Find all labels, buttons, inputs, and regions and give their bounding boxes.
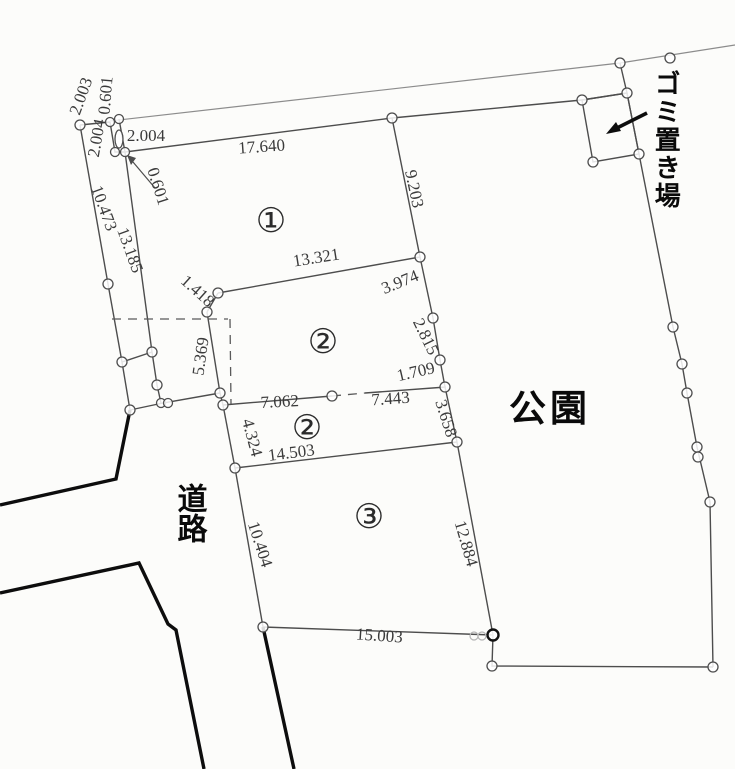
dimension-label: 13.185 (113, 225, 147, 275)
road-label: 道路 (173, 483, 205, 543)
outer-boundary-line (110, 45, 735, 121)
dimension-label: 13.321 (292, 245, 341, 271)
dashed-boundary (112, 319, 231, 404)
dimension-label: 2.004 (127, 126, 166, 145)
road-outline (0, 410, 294, 769)
parcel-number: ② (292, 408, 322, 448)
garbage-area-outline (582, 93, 639, 162)
corner-jog-detail (115, 130, 123, 148)
dimension-label: 4.324 (238, 417, 266, 459)
parcel-number: ① (256, 201, 286, 241)
dimension-label: 9.203 (401, 168, 428, 209)
dimension-label: 17.640 (238, 135, 286, 157)
dimension-label: 3.974 (379, 266, 422, 298)
dimension-label: 0.601 (143, 165, 173, 207)
dimension-label: 2.004 (84, 117, 109, 158)
park-label: 公園 (509, 390, 591, 429)
garbage-area-label: ゴミ置き場 (651, 70, 678, 210)
garbage-arrow (606, 113, 647, 134)
dimension-label: 1.418 (177, 271, 218, 311)
parcel-number: ③ (354, 497, 384, 537)
parcel-number: ② (308, 322, 338, 362)
dimension-label: 10.473 (87, 183, 121, 233)
dimension-label: 3.658 (431, 397, 461, 439)
dimension-label: 12.884 (451, 518, 482, 569)
map-canvas: 17.6409.20313.3211.4185.3693.9742.8151.7… (0, 0, 735, 769)
dimension-label: 5.369 (188, 336, 212, 377)
dimension-label: 0.601 (94, 76, 116, 116)
cadastral-survey-map: 17.6409.20313.3211.4185.3693.9742.8151.7… (0, 0, 735, 769)
dimension-label: 15.003 (355, 624, 403, 646)
dimension-label: 2.003 (65, 75, 96, 117)
dimension-label: 1.709 (395, 358, 437, 385)
dimension-label: 7.443 (371, 388, 410, 410)
parcel-3-boundary (235, 442, 493, 635)
dimension-label: 2.815 (409, 315, 443, 358)
